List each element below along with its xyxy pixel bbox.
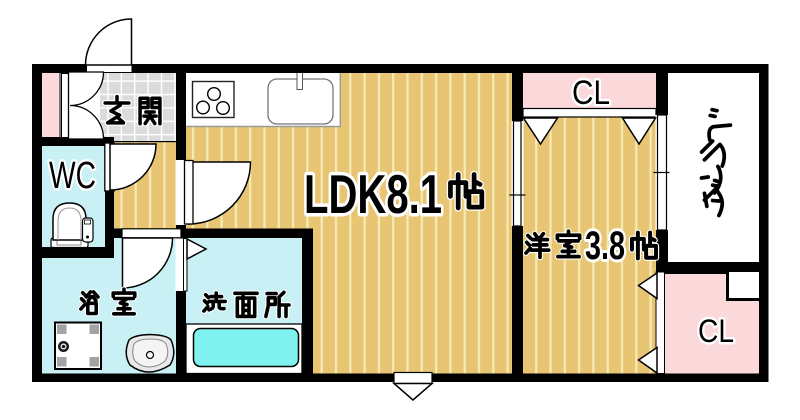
- svg-text:CL: CL: [698, 313, 734, 349]
- svg-text:LDK8.1: LDK8.1: [304, 163, 442, 225]
- svg-text:CL: CL: [572, 74, 610, 112]
- svg-text:3.8: 3.8: [585, 224, 625, 268]
- svg-text:WC: WC: [49, 155, 96, 197]
